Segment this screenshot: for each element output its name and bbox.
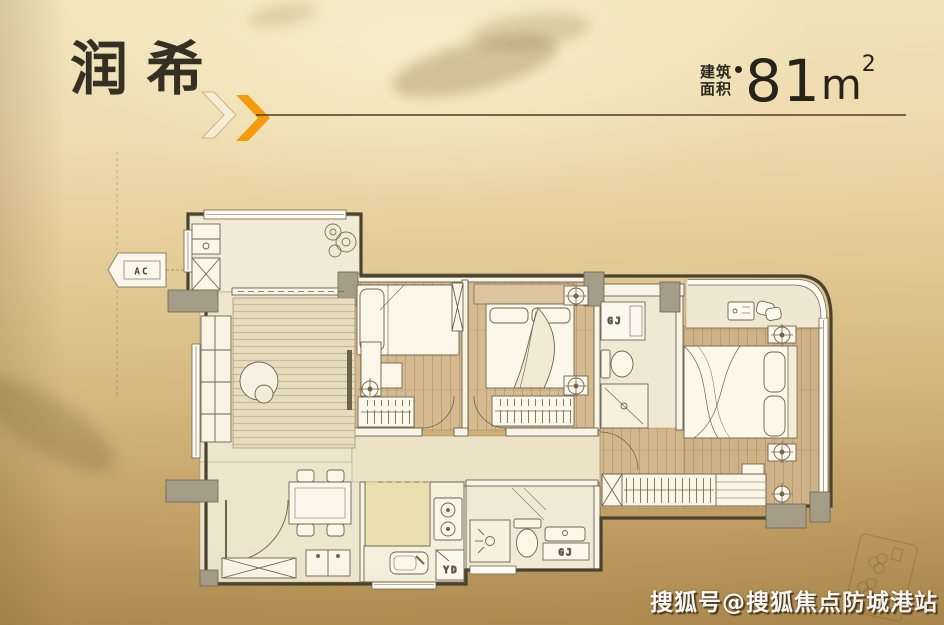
shower <box>470 520 510 562</box>
master-bed <box>684 346 797 438</box>
master-wardrobe <box>602 474 766 506</box>
bay-window-seat <box>686 280 823 328</box>
sofa <box>201 316 231 442</box>
window-seat-tray <box>728 302 754 320</box>
headboard <box>474 284 574 304</box>
kitchen-duct-label: YD <box>443 565 458 576</box>
page: 润希 建筑 面积 81 m 2 <box>0 0 944 625</box>
kitchen-sink <box>390 552 428 574</box>
double-bed <box>486 304 574 388</box>
guest-bath-cabinet: GJ <box>543 543 589 560</box>
master-toilet <box>601 350 633 378</box>
master-bath-cabinet: GJ <box>601 302 645 340</box>
wardrobe-bedroom1 <box>358 397 414 427</box>
master-bath-cabinet-label: GJ <box>607 316 622 327</box>
sideboard <box>306 550 350 576</box>
washing-machine <box>192 258 220 290</box>
shoe-cabinet <box>222 558 296 578</box>
stove <box>434 498 462 540</box>
corridor-floor <box>352 436 600 482</box>
master-shower <box>601 384 648 428</box>
bath-sink <box>545 527 585 541</box>
tv <box>347 350 352 410</box>
tall-cabinet <box>452 283 463 331</box>
dining-table <box>289 482 351 524</box>
watermark: 搜狐号@搜狐焦点防城港站 <box>650 583 938 617</box>
guest-bath-window <box>470 566 516 574</box>
storage-cabinet <box>192 224 220 254</box>
ac-label: AC <box>134 267 149 278</box>
floor-plan: YD GJ <box>0 0 944 625</box>
guest-bath-cabinet-label: GJ <box>558 548 573 559</box>
wardrobe-bedroom2 <box>492 396 574 426</box>
ac-tag: AC <box>108 152 186 398</box>
kitchen-duct-box: YD <box>436 550 464 580</box>
